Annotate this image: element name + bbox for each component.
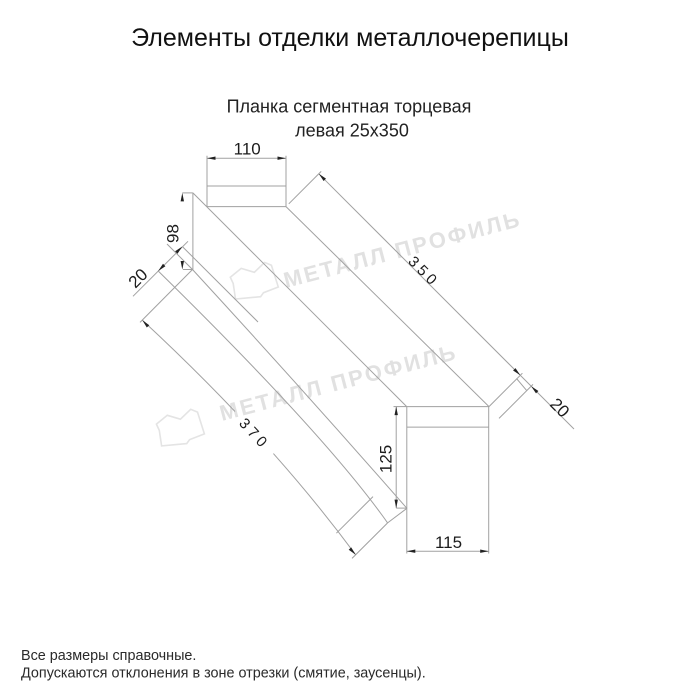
- svg-text:370: 370: [235, 415, 273, 454]
- svg-text:Планка сегментная торцевая: Планка сегментная торцевая: [227, 97, 472, 117]
- svg-text:левая 25х350: левая 25х350: [295, 121, 409, 141]
- svg-text:МЕТАЛЛ ПРОФИЛЬ: МЕТАЛЛ ПРОФИЛЬ: [217, 339, 460, 426]
- svg-text:350: 350: [405, 253, 443, 291]
- svg-text:Все размеры справочные.: Все размеры справочные.: [21, 648, 196, 664]
- svg-text:Элементы отделки металлочерепи: Элементы отделки металлочерепицы: [131, 24, 569, 52]
- svg-text:98: 98: [163, 224, 182, 243]
- svg-text:110: 110: [234, 139, 261, 158]
- svg-text:125: 125: [377, 445, 396, 473]
- svg-text:20: 20: [546, 394, 573, 421]
- svg-text:115: 115: [435, 533, 462, 552]
- svg-text:Допускаются отклонения в зоне: Допускаются отклонения в зоне отрезки (с…: [21, 666, 426, 682]
- svg-text:МЕТАЛЛ ПРОФИЛЬ: МЕТАЛЛ ПРОФИЛЬ: [281, 206, 524, 293]
- svg-text:20: 20: [125, 265, 152, 292]
